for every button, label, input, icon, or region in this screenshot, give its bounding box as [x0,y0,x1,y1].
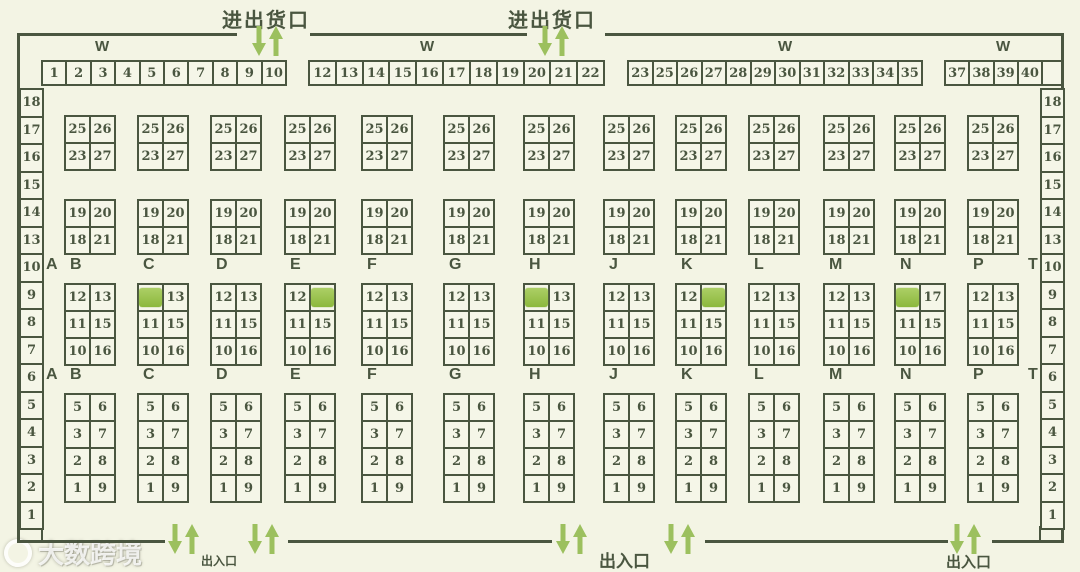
stall-cell: 2 [138,448,163,475]
stall-cell: 10 [749,338,774,365]
block-mid-D: 121311151016 [210,283,262,366]
stall-cell: 5 [444,394,469,421]
stall-cell: 9 [387,475,412,502]
stall-cell: 21 [849,227,874,254]
stall-cell: 12 [362,284,387,311]
stall-cell: 8 [849,448,874,475]
stall-cell: 26 [387,116,412,143]
stall-cell: 16 [774,338,799,365]
row-number-cell: 6 [19,363,44,393]
stall-cell: 6 [629,394,654,421]
block-upper-C: 25262327 [137,115,189,171]
stall-cell: 19 [895,200,920,227]
stall-cell: 25 [362,116,387,143]
stall-cell: 16 [469,338,494,365]
block-second-G: 19201821 [443,199,495,255]
stall-cell: 13 [236,284,261,311]
stall-cell: 27 [993,143,1018,170]
block-upper-E: 25262327 [284,115,336,171]
stall-cell: 23 [211,143,236,170]
stall-cell: 12 [65,284,90,311]
wall-segment [17,540,165,543]
stall-cell: 23 [749,143,774,170]
stall-cell: 15 [629,311,654,338]
stall-cell: 9 [90,475,115,502]
wall-stall-cell: 26 [676,60,703,86]
wall-stall-cell: 38 [968,60,994,86]
stall-cell: 25 [524,116,549,143]
stall-cell: 18 [604,227,629,254]
wall-stall-cell: 35 [897,60,924,86]
stall-cell: 21 [310,227,335,254]
stall-cell: 19 [749,200,774,227]
stall-cell: 10 [362,338,387,365]
arrow-down-icon [538,26,552,56]
stall-cell: 10 [211,338,236,365]
stall-cell: 5 [362,394,387,421]
stall-cell: 27 [849,143,874,170]
stall-cell: 7 [469,421,494,448]
wall-stall-cell: 4 [114,60,140,86]
stall-cell: 16 [849,338,874,365]
w-row-group-1: 12345678910 [41,60,287,86]
stall-cell: 13 [469,284,494,311]
stall-cell: 20 [701,200,726,227]
aisle-letter-T-2: T [1028,366,1038,384]
aisle-letter-K-2: K [681,366,693,384]
stall-cell: 18 [895,227,920,254]
stall-cell [895,284,920,311]
stall-cell: 26 [236,116,261,143]
stall-cell: 7 [774,421,799,448]
stall-cell: 12 [604,284,629,311]
wall-segment [992,540,1064,543]
block-upper-F: 25262327 [361,115,413,171]
stall-cell: 9 [163,475,188,502]
stall-cell: 20 [469,200,494,227]
block-second-K: 19201821 [675,199,727,255]
stall-cell: 5 [65,394,90,421]
stall-cell: 20 [163,200,188,227]
stall-cell: 12 [444,284,469,311]
wall-stall-cell: 18 [469,60,498,86]
row-number-cell: 10 [1040,253,1065,283]
block-second-J: 19201821 [603,199,655,255]
stall-cell: 11 [362,311,387,338]
wall-segment [310,33,527,36]
stall-cell: 3 [138,421,163,448]
row-number-cell: 14 [1040,198,1065,228]
left-row-strip: 18171615141310987654321 [19,88,44,530]
stall-cell: 9 [310,475,335,502]
stall-cell: 5 [676,394,701,421]
wall-stall-cell: 29 [750,60,777,86]
stall-cell: 18 [749,227,774,254]
stall-cell: 1 [444,475,469,502]
stall-cell: 1 [285,475,310,502]
stall-cell: 10 [968,338,993,365]
row-number-cell: 1 [19,501,44,531]
stall-cell: 6 [920,394,945,421]
wall-segment [288,540,552,543]
row-number-cell: 13 [1040,226,1065,256]
selected-stall-marker [896,288,919,307]
stall-cell: 16 [629,338,654,365]
stall-cell: 9 [549,475,574,502]
block-second-E: 19201821 [284,199,336,255]
wall-stall-cell: 16 [415,60,444,86]
aisle-letter-P-1: P [973,256,984,274]
stall-cell: 12 [211,284,236,311]
aisle-letter-H-2: H [529,366,541,384]
stall-cell: 11 [65,311,90,338]
stall-cell: 23 [444,143,469,170]
wall-segment [605,33,1064,36]
wall-stall-cell: 37 [944,60,970,86]
wall-stall-cell: 32 [823,60,850,86]
aisle-letter-G-2: G [449,366,461,384]
stall-cell: 7 [549,421,574,448]
stall-cell: 21 [469,227,494,254]
wall-stall-cell: 34 [872,60,899,86]
stall-cell: 13 [90,284,115,311]
stall-cell: 18 [65,227,90,254]
stall-cell: 9 [993,475,1018,502]
stall-cell: 2 [362,448,387,475]
aisle-letter-M-1: M [829,256,842,274]
block-lower-P: 56372819 [967,393,1019,503]
stall-cell: 16 [310,338,335,365]
stall-cell: 19 [524,200,549,227]
block-mid-J: 121311151016 [603,283,655,366]
stall-cell: 11 [749,311,774,338]
block-mid-F: 121311151016 [361,283,413,366]
aisle-letter-J-1: J [609,256,618,274]
stall-cell: 9 [701,475,726,502]
wall-stall-cell: 15 [388,60,417,86]
row-number-cell: 17 [1040,116,1065,146]
aisle-letter-B-1: B [70,256,82,274]
wall-stall-cell: 25 [652,60,679,86]
stall-cell: 27 [387,143,412,170]
stall-cell: 10 [65,338,90,365]
row-number-cell: 7 [19,336,44,366]
stall-cell: 21 [549,227,574,254]
stall-cell: 26 [849,116,874,143]
stall-cell: 23 [968,143,993,170]
stall-cell: 15 [774,311,799,338]
stall-cell: 15 [920,311,945,338]
stall-cell: 9 [774,475,799,502]
wing-label-2: W [420,38,434,55]
row-number-cell: 5 [19,391,44,421]
stall-cell: 19 [444,200,469,227]
block-second-N: 19201821 [894,199,946,255]
stall-cell: 19 [285,200,310,227]
block-lower-D: 56372819 [210,393,262,503]
stall-cell: 6 [993,394,1018,421]
stall-cell: 8 [236,448,261,475]
stall-cell: 27 [236,143,261,170]
stall-cell: 20 [774,200,799,227]
block-lower-J: 56372819 [603,393,655,503]
row-number-cell: 2 [1040,473,1065,503]
stall-cell: 23 [65,143,90,170]
stall-cell: 9 [629,475,654,502]
aisle-letter-E-1: E [290,256,301,274]
stall-cell: 5 [895,394,920,421]
stall-cell: 10 [895,338,920,365]
stall-cell: 23 [824,143,849,170]
block-upper-D: 25262327 [210,115,262,171]
block-second-P: 19201821 [967,199,1019,255]
stall-cell: 17 [920,284,945,311]
stall-cell: 26 [549,116,574,143]
stall-cell: 25 [824,116,849,143]
stall-cell: 11 [444,311,469,338]
stall-cell: 20 [310,200,335,227]
row-number-cell: 7 [1040,336,1065,366]
stall-cell: 15 [387,311,412,338]
stall-cell: 7 [90,421,115,448]
block-upper-L: 25262327 [748,115,800,171]
wing-label-3: W [778,38,792,55]
block-upper-G: 25262327 [443,115,495,171]
stall-cell: 8 [993,448,1018,475]
stall-cell: 7 [163,421,188,448]
stall-cell: 5 [824,394,849,421]
stall-cell: 19 [604,200,629,227]
stall-cell: 19 [968,200,993,227]
stall-cell: 8 [163,448,188,475]
row-number-cell: 16 [19,143,44,173]
stall-cell: 10 [676,338,701,365]
stall-cell: 10 [524,338,549,365]
stall-cell: 23 [676,143,701,170]
stall-cell: 12 [824,284,849,311]
stall-cell: 20 [849,200,874,227]
stall-cell: 1 [824,475,849,502]
exit-label-right: 出入口 [946,551,991,572]
stall-cell: 7 [920,421,945,448]
selected-stall-marker [525,288,548,307]
stall-cell: 2 [824,448,849,475]
stall-cell: 5 [211,394,236,421]
stall-cell: 26 [90,116,115,143]
stall-cell: 25 [138,116,163,143]
entrance-arrows [950,524,981,554]
stall-cell: 6 [549,394,574,421]
stall-cell: 8 [629,448,654,475]
wall-stall-cell: 12 [308,60,337,86]
entrance-arrows [538,26,569,56]
stall-cell: 1 [362,475,387,502]
wall-stall-cell: 22 [576,60,605,86]
stall-cell: 18 [211,227,236,254]
stall-cell: 6 [774,394,799,421]
row-number-cell: 13 [19,226,44,256]
stall-cell: 23 [895,143,920,170]
stall-cell: 13 [549,284,574,311]
block-mid-H: 1311151016 [523,283,575,366]
aisle-letter-K-1: K [681,256,693,274]
stall-cell: 23 [524,143,549,170]
wall-stall-cell: 8 [212,60,238,86]
stall-cell: 21 [774,227,799,254]
stall-cell: 2 [524,448,549,475]
stall-cell: 3 [749,421,774,448]
stall-cell: 16 [920,338,945,365]
arrow-down-icon [168,524,182,554]
stall-cell: 11 [895,311,920,338]
stall-cell: 2 [65,448,90,475]
stall-cell: 8 [310,448,335,475]
aisle-letter-M-2: M [829,366,842,384]
stall-cell: 21 [236,227,261,254]
block-second-H: 19201821 [523,199,575,255]
stall-cell: 11 [824,311,849,338]
entrance-arrows [248,524,279,554]
stall-cell: 8 [469,448,494,475]
wall-segment [705,540,948,543]
stall-cell: 2 [285,448,310,475]
wall-stall-cell: 28 [725,60,752,86]
wall-stall-cell: 2 [65,60,91,86]
stall-cell: 26 [629,116,654,143]
stall-cell: 2 [444,448,469,475]
block-lower-C: 56372819 [137,393,189,503]
aisle-letter-L-2: L [754,366,764,384]
stall-cell: 6 [849,394,874,421]
stall-cell: 13 [993,284,1018,311]
block-lower-F: 56372819 [361,393,413,503]
wing-label-4: W [996,38,1010,55]
stall-cell: 21 [993,227,1018,254]
block-mid-L: 121311151016 [748,283,800,366]
wall-stall-cell: 27 [701,60,728,86]
stall-cell [524,284,549,311]
arrow-up-icon [265,524,279,554]
exit-label-center: 出入口 [599,547,650,572]
stall-cell: 6 [236,394,261,421]
aisle-letter-J-2: J [609,366,618,384]
aisle-letter-G-1: G [449,256,461,274]
stall-cell: 8 [90,448,115,475]
wall-stall-cell: 5 [139,60,165,86]
stall-cell: 11 [676,311,701,338]
block-mid-E: 1211151016 [284,283,336,366]
block-upper-M: 25262327 [823,115,875,171]
stall-cell: 1 [524,475,549,502]
stall-cell: 19 [824,200,849,227]
stall-cell [138,284,163,311]
stall-cell: 25 [604,116,629,143]
block-upper-P: 25262327 [967,115,1019,171]
stall-cell: 23 [285,143,310,170]
stall-cell: 12 [285,284,310,311]
wall-stall-cell: 17 [442,60,471,86]
stall-cell: 3 [285,421,310,448]
row-number-cell: 8 [19,308,44,338]
aisle-letter-L-1: L [754,256,764,274]
arrow-down-icon [252,26,266,56]
aisle-letter-C-2: C [143,366,155,384]
stall-cell: 25 [211,116,236,143]
stall-cell: 25 [968,116,993,143]
aisle-letter-F-2: F [367,366,377,384]
selected-stall-marker [311,288,334,307]
row-number-cell: 18 [19,88,44,118]
stall-cell: 27 [701,143,726,170]
row-number-cell: 4 [1040,418,1065,448]
aisle-letter-N-1: N [900,256,912,274]
stall-cell: 20 [920,200,945,227]
market-floor-plan: 进出货口 进出货口 W W W W 出入口 出入口 出入口 大数跨境 12345… [0,0,1080,572]
stall-cell: 21 [90,227,115,254]
stall-cell: 15 [849,311,874,338]
block-lower-B: 56372819 [64,393,116,503]
stall-cell: 26 [163,116,188,143]
row-number-cell: 17 [19,116,44,146]
stall-cell: 18 [285,227,310,254]
wall-stall-cell: 30 [774,60,801,86]
block-mid-M: 121311151016 [823,283,875,366]
row-number-cell: 9 [19,281,44,311]
stall-cell: 16 [90,338,115,365]
block-upper-H: 25262327 [523,115,575,171]
stall-cell: 19 [138,200,163,227]
aisle-letter-E-2: E [290,366,301,384]
stall-cell: 9 [920,475,945,502]
w-row-group-4: 37383940 [944,60,1043,86]
stall-cell: 25 [895,116,920,143]
stall-cell: 20 [549,200,574,227]
stall-cell: 11 [524,311,549,338]
stall-cell: 13 [774,284,799,311]
row-number-cell: 4 [19,418,44,448]
stall-cell: 7 [236,421,261,448]
stall-cell: 7 [993,421,1018,448]
stall-cell: 10 [604,338,629,365]
block-upper-J: 25262327 [603,115,655,171]
stall-cell: 6 [163,394,188,421]
arrow-up-icon [967,524,981,554]
stall-cell: 1 [604,475,629,502]
stall-cell: 1 [211,475,236,502]
row-number-cell: 3 [1040,446,1065,476]
stall-cell: 8 [701,448,726,475]
stall-cell: 7 [701,421,726,448]
stall-cell: 23 [138,143,163,170]
block-mid-C: 1311151016 [137,283,189,366]
stall-cell: 20 [993,200,1018,227]
stall-cell: 27 [469,143,494,170]
arrow-down-icon [248,524,262,554]
block-lower-H: 56372819 [523,393,575,503]
wall-stall-cell: 23 [627,60,654,86]
stall-cell: 27 [549,143,574,170]
wall-stall-cell: 1 [41,60,67,86]
stall-cell: 9 [469,475,494,502]
w-row-group-3: 232526272829303132333435 [627,60,923,86]
stall-cell: 19 [676,200,701,227]
wall-stall-cell: 33 [848,60,875,86]
selected-stall-marker [139,288,162,307]
stall-cell: 13 [163,284,188,311]
aisle-letter-P-2: P [973,366,984,384]
stall-cell: 18 [968,227,993,254]
stall-cell: 16 [549,338,574,365]
